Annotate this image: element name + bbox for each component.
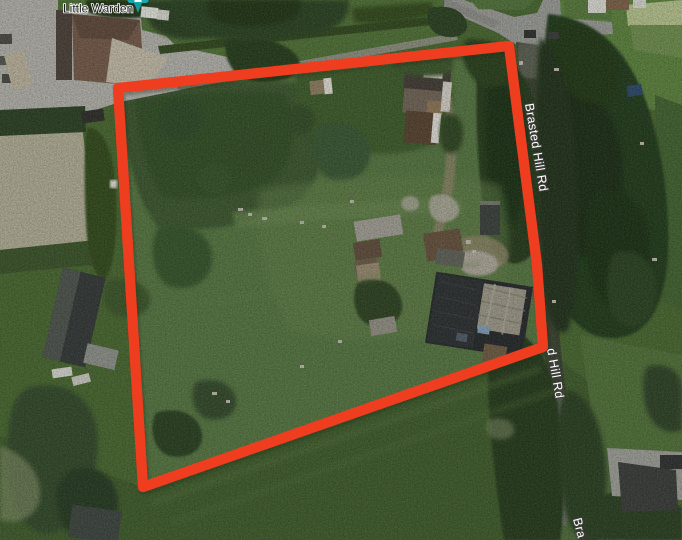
svg-text:Little Warden: Little Warden — [63, 2, 133, 16]
